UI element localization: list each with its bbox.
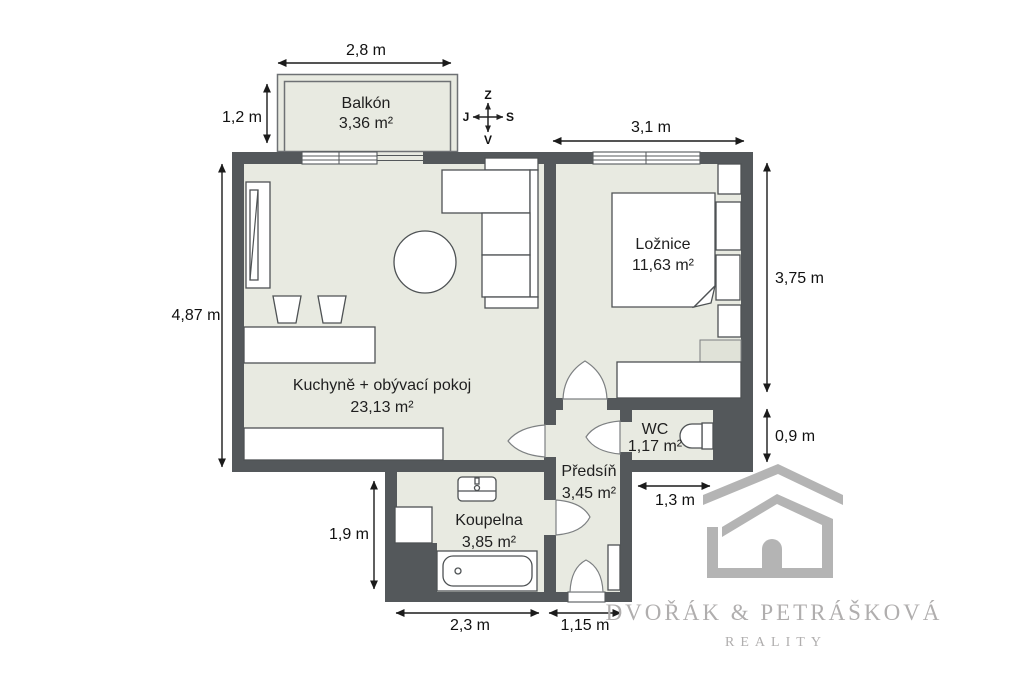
logo-door xyxy=(762,539,782,578)
room-label-hall: Předsíň xyxy=(561,463,616,480)
dim-living-height: 4,87 m xyxy=(172,307,221,324)
room-area-wc: 1,17 m² xyxy=(628,438,683,455)
agency-name: DVOŘÁK & PETRÁŠKOVÁ xyxy=(606,599,943,625)
dim-balcony-width: 2,8 m xyxy=(346,42,386,59)
washing-machine xyxy=(395,507,432,543)
round-table xyxy=(394,231,456,293)
dim-bathroom-height: 1,9 m xyxy=(329,526,369,543)
bedroom-wardrobe xyxy=(718,164,741,194)
toilet-tank xyxy=(702,423,713,449)
compass: Z J S V xyxy=(463,88,514,147)
sofa-armrest-bottom xyxy=(485,297,538,308)
bedroom-window xyxy=(593,152,700,164)
stool xyxy=(273,296,301,323)
room-area-living: 23,13 m² xyxy=(350,399,414,416)
compass-down: V xyxy=(484,133,492,147)
room-label-bathroom: Koupelna xyxy=(455,512,523,529)
room-area-bedroom: 11,63 m² xyxy=(632,257,695,274)
nightstand xyxy=(716,202,741,250)
sofa-cushion xyxy=(482,213,530,255)
living-door-gap xyxy=(544,425,556,457)
compass-left: J xyxy=(463,110,470,124)
room-area-balcony: 3,36 m² xyxy=(339,115,394,132)
dresser xyxy=(617,362,741,398)
hall-cabinet xyxy=(608,545,620,590)
agency-logo xyxy=(703,464,843,578)
wc-furniture xyxy=(680,423,713,449)
dim-hall-width: 1,15 m xyxy=(561,617,610,634)
sink-tap xyxy=(475,478,479,484)
dim-balcony-depth: 1,2 m xyxy=(222,109,262,126)
sofa-chaise xyxy=(442,170,530,213)
nightstand xyxy=(716,255,740,300)
sofa-armrest-right xyxy=(530,170,538,297)
entrance-threshold xyxy=(568,592,605,602)
toilet-bowl xyxy=(680,424,702,448)
compass-up: Z xyxy=(484,88,491,102)
bench xyxy=(700,340,741,362)
room-label-balcony: Balkón xyxy=(342,95,391,112)
bath-door-gap xyxy=(544,500,556,535)
dim-bedroom-height: 3,75 m xyxy=(775,270,824,287)
side-unit xyxy=(718,305,741,337)
room-label-wc: WC xyxy=(642,421,669,438)
room-label-living: Kuchyně + obývací pokoj xyxy=(293,377,471,394)
dim-bathroom-width: 2,3 m xyxy=(450,617,490,634)
compass-right: S xyxy=(506,110,514,124)
balcony-floor xyxy=(277,74,458,152)
floor-plan-page: Balkón 3,36 m² Ložnice 11,63 m² Kuchyně … xyxy=(0,0,1024,683)
agency-subtitle: REALITY xyxy=(725,635,827,650)
dim-wc-height: 0,9 m xyxy=(775,428,815,445)
sofa-back xyxy=(485,158,538,170)
room-label-bedroom: Ložnice xyxy=(635,236,690,253)
sofa-cushion xyxy=(482,255,530,297)
room-area-hall: 3,45 m² xyxy=(562,485,617,502)
bedroom-door-gap xyxy=(563,398,607,410)
bathtub-drain xyxy=(455,568,461,574)
balcony-door-gap xyxy=(377,152,423,164)
floor-plan: Balkón 3,36 m² Ložnice 11,63 m² Kuchyně … xyxy=(0,0,1024,683)
dim-wc-width: 1,3 m xyxy=(655,492,695,509)
living-window xyxy=(302,152,377,164)
dim-bedroom-width: 3,1 m xyxy=(631,119,671,136)
kitchen-counter xyxy=(244,327,375,363)
room-area-bathroom: 3,85 m² xyxy=(462,534,517,551)
stool xyxy=(318,296,346,323)
sink-tap-knob xyxy=(475,486,480,491)
kitchen-line xyxy=(244,428,443,460)
